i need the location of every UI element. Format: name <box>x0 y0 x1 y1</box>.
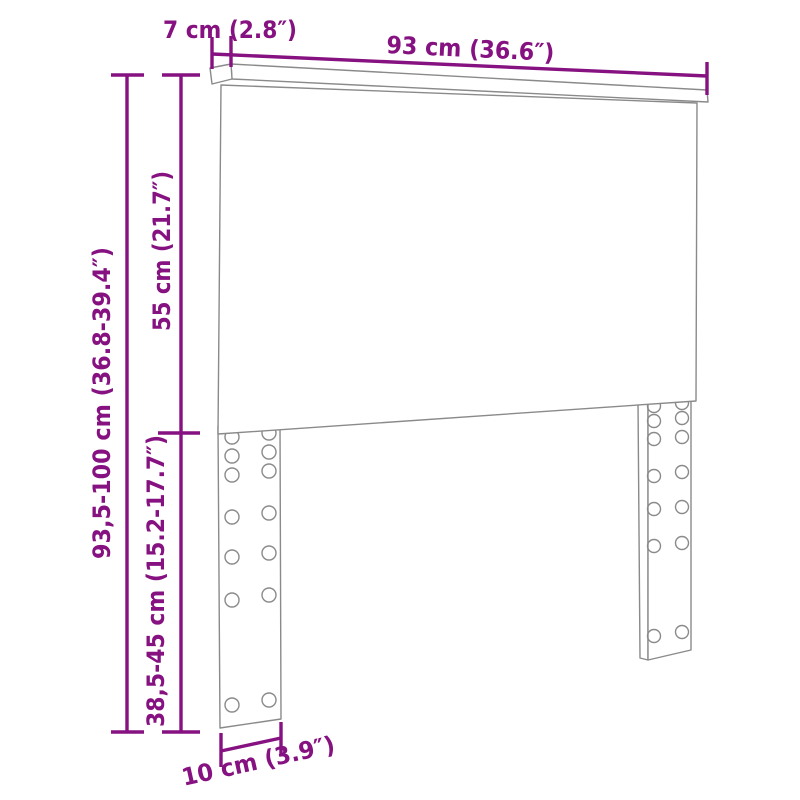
left-leg <box>218 423 281 728</box>
right-leg-front-face <box>648 398 691 660</box>
leg-width-label: 10 cm (3.9″) <box>179 731 337 792</box>
right-leg <box>638 397 691 661</box>
leg-height-label: 38,5-45 cm (15.2-17.7″) <box>142 435 170 727</box>
diagram-canvas: 7 cm (2.8″) 93 cm (36.6″) 93,5-100 cm (3… <box>0 0 800 800</box>
headboard-dimension-diagram: 7 cm (2.8″) 93 cm (36.6″) 93,5-100 cm (3… <box>0 0 800 800</box>
right-leg-side-face <box>638 401 648 660</box>
depth-top-label: 7 cm (2.8″) <box>163 16 297 44</box>
headboard-panel <box>218 85 697 434</box>
total-height-label: 93,5-100 cm (36.8-39.4″) <box>88 247 116 559</box>
left-leg-front-face <box>218 423 281 728</box>
panel-height-label: 55 cm (21.7″) <box>148 171 176 331</box>
